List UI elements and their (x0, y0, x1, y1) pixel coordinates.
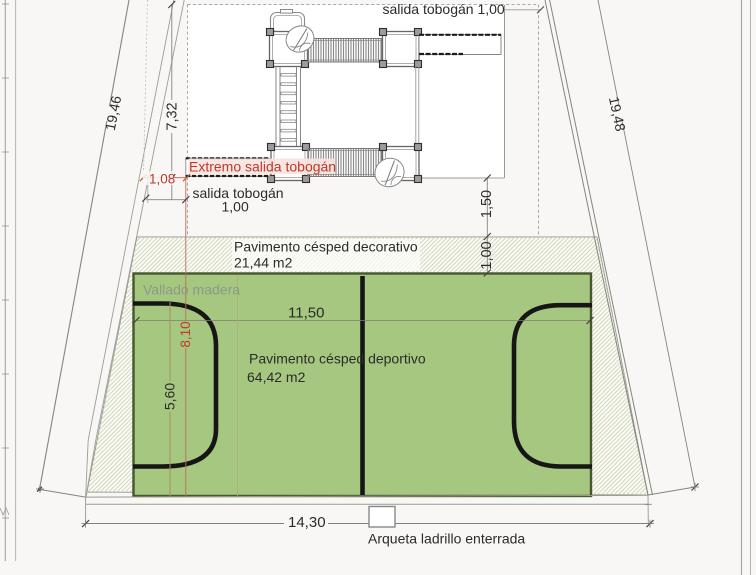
svg-text:21,44 m2: 21,44 m2 (234, 255, 293, 271)
svg-text:1,00: 1,00 (479, 241, 495, 269)
svg-text:14,30: 14,30 (288, 514, 326, 531)
svg-text:5,60: 5,60 (161, 383, 177, 410)
svg-text:Extremo salida tobogán: Extremo salida tobogán (189, 159, 336, 175)
svg-text:salida tobogán 1,00: salida tobogán 1,00 (383, 1, 505, 17)
svg-text:Vallado madera: Vallado madera (143, 282, 240, 298)
svg-text:8,10: 8,10 (178, 321, 193, 347)
svg-text:11,50: 11,50 (288, 305, 324, 322)
svg-text:Pavimento césped decorativo: Pavimento césped decorativo (234, 239, 418, 255)
svg-text:1,00: 1,00 (222, 199, 249, 215)
svg-text:1,50: 1,50 (479, 190, 495, 218)
svg-text:Arqueta ladrillo enterrada: Arqueta ladrillo enterrada (368, 531, 525, 547)
svg-text:Pavimento césped deportivo: Pavimento césped deportivo (249, 351, 426, 367)
svg-text:64,42 m2: 64,42 m2 (247, 369, 306, 385)
svg-text:7,32: 7,32 (165, 102, 181, 130)
svg-text:1,08: 1,08 (149, 172, 175, 187)
